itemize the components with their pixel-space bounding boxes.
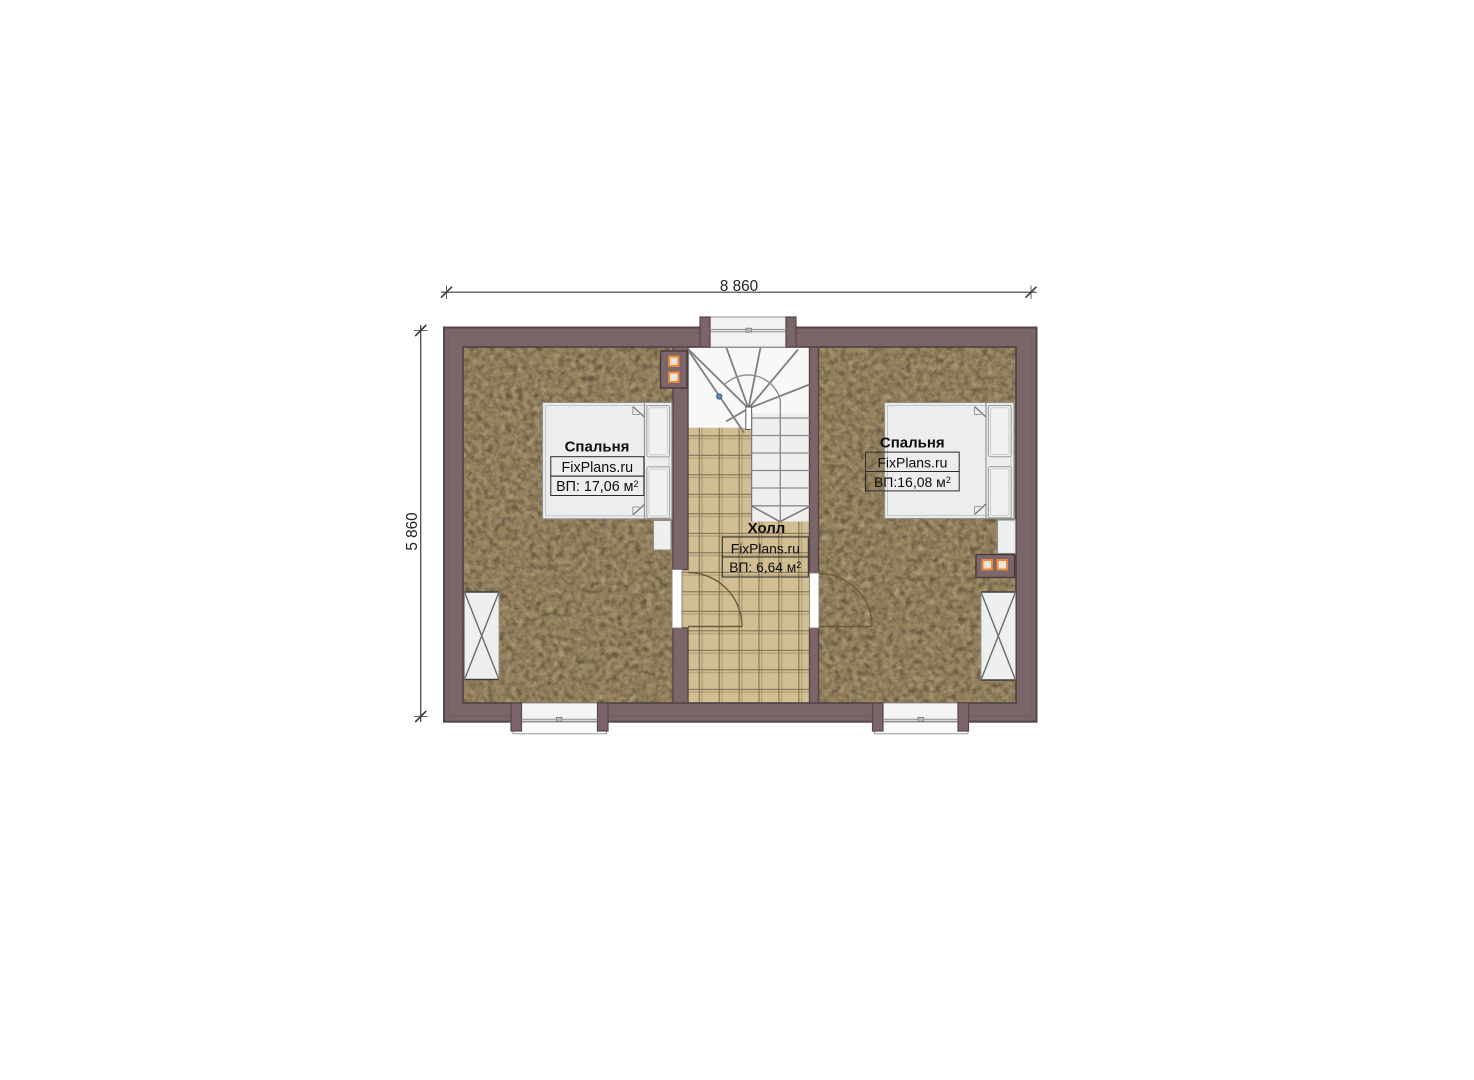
svg-text:8 860: 8 860 (720, 278, 758, 295)
svg-text:ВП: 17,06 м2: ВП: 17,06 м2 (556, 479, 638, 495)
svg-text:5 860: 5 860 (404, 512, 421, 550)
svg-text:ВП:16,08 м2: ВП:16,08 м2 (874, 474, 951, 490)
svg-text:Спальня: Спальня (565, 439, 630, 456)
svg-text:Спальня: Спальня (880, 434, 945, 451)
svg-text:FixPlans.ru: FixPlans.ru (562, 460, 634, 476)
svg-text:Холл: Холл (748, 520, 786, 537)
svg-text:FixPlans.ru: FixPlans.ru (877, 454, 947, 470)
svg-text:ВП: 6,64 м2: ВП: 6,64 м2 (729, 560, 801, 575)
svg-text:FixPlans.ru: FixPlans.ru (731, 542, 800, 557)
